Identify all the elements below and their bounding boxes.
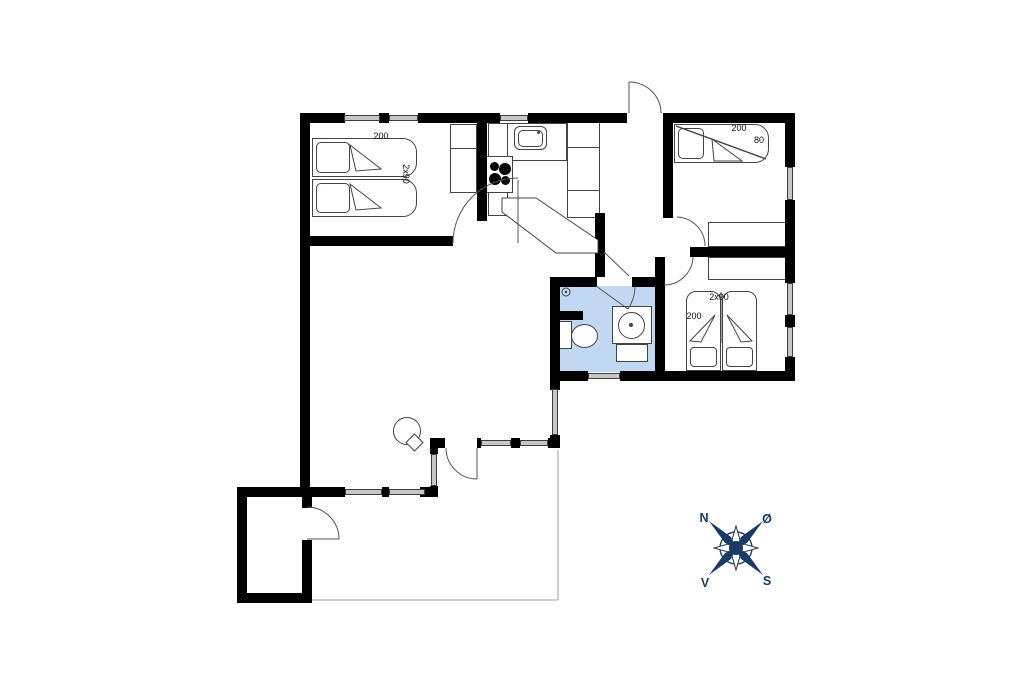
bathroom-door [596, 252, 635, 309]
compass-rose: N Ø V S [699, 511, 772, 590]
plan-overlay: N Ø V S [0, 0, 1024, 682]
annex-door [307, 507, 339, 539]
terrace-outline [312, 450, 558, 600]
terrace-door [446, 448, 477, 479]
bed-blanket-fold [350, 184, 381, 210]
bed-length-label: 200 [366, 131, 396, 141]
bed-blanket-fold [350, 145, 381, 171]
bedroom2-door [677, 217, 705, 246]
compass-label-west: V [701, 576, 710, 590]
bed-blanket-fold [712, 139, 742, 161]
kitchen-peninsula-counter [502, 198, 598, 253]
bed-width-label: 80 [746, 135, 772, 145]
compass-label-north: N [699, 511, 708, 525]
compass-label-south: S [763, 574, 771, 588]
entry-door [629, 82, 661, 113]
floor-plan: N Ø V S 200 2x90 200 80 2x90 200 [0, 0, 1024, 682]
compass-center [729, 541, 743, 555]
bed-width-label: 2x90 [401, 157, 411, 191]
bed-length-label: 200 [680, 311, 708, 321]
bedroom3-door [664, 257, 693, 285]
bed-blanket-fold [727, 315, 752, 342]
bed-length-label: 200 [724, 123, 754, 133]
bed-width-label: 2x90 [703, 292, 735, 302]
shower-head-dot [565, 291, 567, 293]
compass-label-east: Ø [762, 512, 772, 526]
